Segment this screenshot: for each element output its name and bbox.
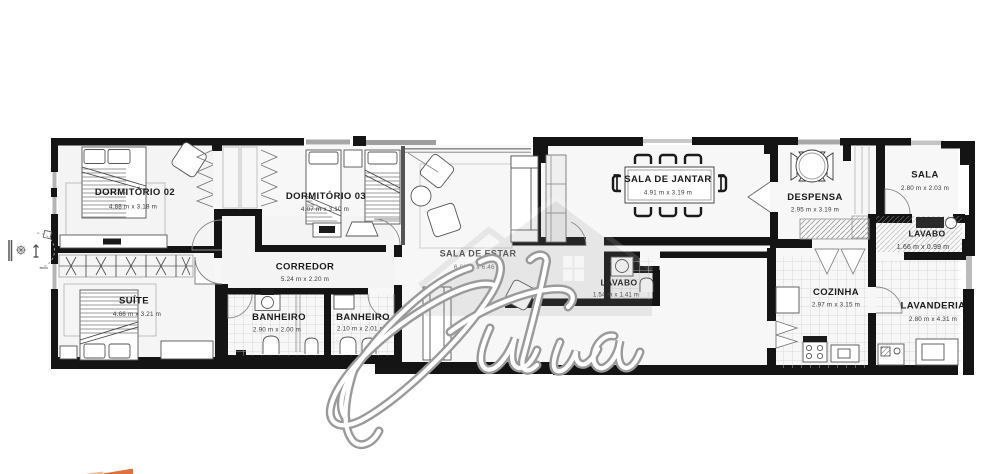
svg-text:2.97 m x 3.15 m: 2.97 m x 3.15 m <box>812 302 860 309</box>
svg-text:SALA DE JANTAR: SALA DE JANTAR <box>624 174 711 185</box>
svg-text:LAVABO: LAVABO <box>908 229 945 239</box>
svg-text:CORREDOR: CORREDOR <box>276 262 335 273</box>
svg-text:4.88 m x 3.18 m: 4.88 m x 3.18 m <box>109 204 157 211</box>
svg-text:5.24 m x 2.20 m: 5.24 m x 2.20 m <box>281 276 329 283</box>
svg-text:2.10 m x 2.01 m: 2.10 m x 2.01 m <box>337 326 385 333</box>
svg-text:DORMITÓRIO 03: DORMITÓRIO 03 <box>286 190 366 202</box>
svg-text:BANHEIRO: BANHEIRO <box>336 312 390 323</box>
svg-text:2.90 m x 2.00 m: 2.90 m x 2.00 m <box>253 327 301 334</box>
svg-text:4.66 m x 3.21 m: 4.66 m x 3.21 m <box>113 311 161 318</box>
svg-text:4.91 m x 3.19 m: 4.91 m x 3.19 m <box>644 190 692 197</box>
svg-text:2.80 m x 4.31 m: 2.80 m x 4.31 m <box>909 316 957 323</box>
svg-text:SUÍTE: SUÍTE <box>119 296 149 307</box>
svg-text:4.07 m x 3.10 m: 4.07 m x 3.10 m <box>301 206 349 213</box>
svg-text:DESPENSA: DESPENSA <box>787 192 842 203</box>
svg-text:COZINHA: COZINHA <box>813 287 859 298</box>
svg-text:DORMITÓRIO 02: DORMITÓRIO 02 <box>95 186 175 198</box>
svg-text:2.95 m x 3.19 m: 2.95 m x 3.19 m <box>791 207 839 214</box>
svg-text:SALA: SALA <box>911 170 938 181</box>
svg-text:BANHEIRO: BANHEIRO <box>252 312 306 323</box>
svg-text:2.80 m x 2.03 m: 2.80 m x 2.03 m <box>901 185 949 192</box>
svg-text:1.66 m x 0.99 m: 1.66 m x 0.99 m <box>897 244 949 251</box>
svg-text:LAVANDERIA: LAVANDERIA <box>901 301 966 312</box>
